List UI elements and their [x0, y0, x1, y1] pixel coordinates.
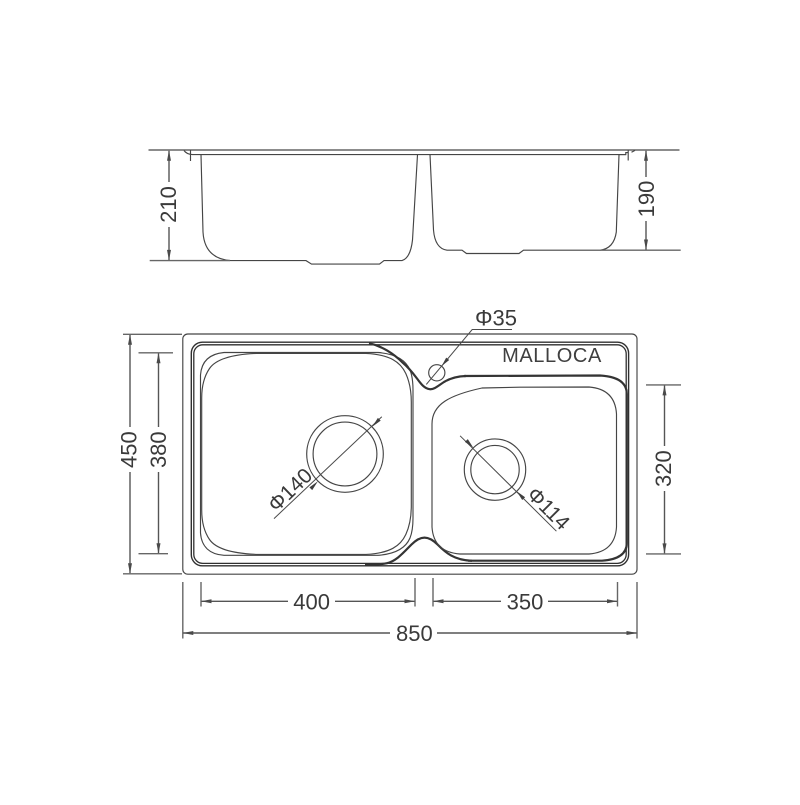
svg-text:320: 320: [651, 450, 676, 487]
svg-text:380: 380: [146, 431, 171, 468]
svg-text:190: 190: [634, 181, 659, 218]
svg-text:450: 450: [116, 431, 141, 468]
svg-text:850: 850: [396, 621, 433, 646]
svg-text:350: 350: [507, 589, 544, 614]
svg-text:MALLOCA: MALLOCA: [502, 345, 602, 367]
svg-text:210: 210: [156, 186, 181, 223]
svg-text:Φ35: Φ35: [475, 306, 517, 331]
svg-text:400: 400: [293, 589, 330, 614]
